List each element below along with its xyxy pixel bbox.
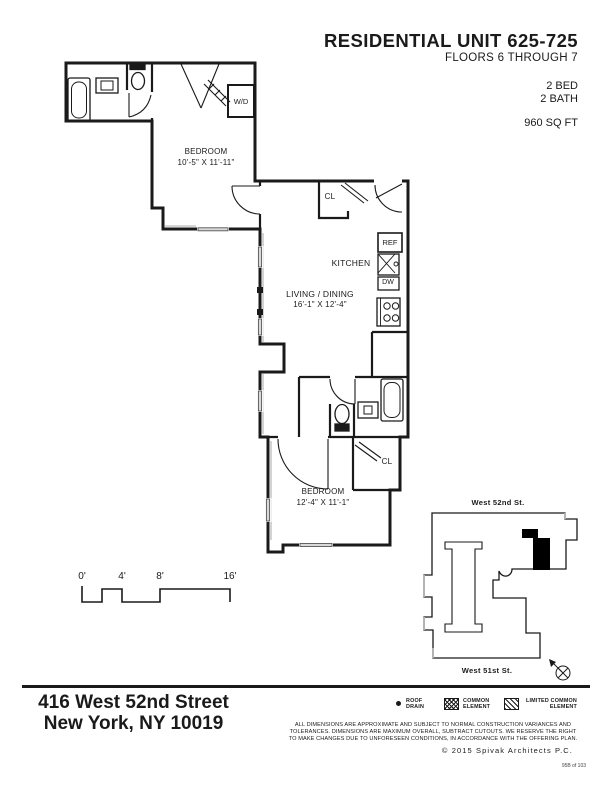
sink2-icon (358, 402, 378, 418)
vestibule-doors (181, 64, 230, 108)
column-marker-1 (257, 287, 263, 293)
compass-icon (549, 659, 570, 680)
toilet2-icon (335, 405, 349, 432)
bathroom1-door (129, 93, 151, 117)
bedroom1-label: BEDROOM (185, 147, 228, 156)
closet2-bifold-door (355, 442, 381, 461)
window-living-3 (257, 390, 264, 412)
bedroom2-label: BEDROOM (302, 487, 345, 496)
address-line1: 416 West 52nd Street (31, 692, 236, 714)
keyplan-gray-edges (424, 513, 565, 658)
disclaimer-line1: ALL DIMENSIONS ARE APPROXIMATE AND SUBJE… (268, 722, 598, 729)
bed-count: 2 BED (546, 80, 578, 92)
legend-roof-drain: ROOF DRAIN (406, 698, 424, 710)
key-plan (424, 513, 577, 680)
bathroom2-door (330, 379, 355, 404)
disclaimer-line3: TO MAKE CHANGES DUE TO UNFORESEEN CONDIT… (268, 736, 598, 743)
legend-limited-common: LIMITED COMMON ELEMENT (522, 698, 577, 710)
interior-walls (127, 63, 408, 490)
washer-dryer-label: W/D (234, 97, 249, 106)
unit-location-fill (522, 529, 550, 570)
entry-opening (374, 178, 402, 184)
bathtub-icon (68, 78, 90, 121)
scale-tick-4: 4' (118, 571, 125, 582)
kitchen-sink-icon (378, 254, 399, 275)
street-label-top: West 52nd St. (472, 498, 525, 507)
page-subtitle: FLOORS 6 THROUGH 7 (445, 52, 578, 64)
floorplan-page: RESIDENTIAL UNIT 625-725 FLOORS 6 THROUG… (0, 0, 612, 792)
fixtures (68, 64, 403, 432)
bathroom2-walls (299, 377, 408, 437)
address-line2: New York, NY 10019 (31, 713, 236, 735)
wall-shading (165, 226, 271, 540)
window-living-1 (257, 246, 264, 268)
kitchen-walls (372, 332, 408, 377)
dishwasher-label: DW (382, 279, 394, 286)
building-lightwell (445, 542, 482, 632)
bedroom1-dimensions: 10'-5" X 11'-11" (177, 158, 234, 167)
roof-drain-icon (396, 701, 401, 706)
window-living-2 (257, 318, 264, 336)
toilet-icon (130, 64, 145, 90)
copyright: © 2015 Spivak Architects P.C. (442, 746, 573, 755)
footer-rule (22, 685, 590, 688)
building-outline (424, 513, 577, 658)
bathtub2-icon (381, 379, 403, 421)
limited-common-element-icon (504, 698, 519, 710)
window-bedroom1 (197, 226, 229, 233)
refrigerator-label: REF (383, 238, 398, 247)
square-footage: 960 SQ FT (524, 117, 578, 129)
scale-tick-16: 16' (223, 571, 236, 582)
range-icon (377, 298, 400, 326)
floorplan-drawing (0, 0, 612, 792)
doors (129, 64, 402, 489)
bedroom1-door (232, 186, 260, 214)
street-label-bottom: West 51st St. (462, 666, 512, 675)
bath-count: 2 BATH (540, 93, 578, 105)
bedroom2-door (278, 439, 328, 489)
legend-common-element: COMMON ELEMENT (463, 698, 490, 710)
closet2-walls (353, 437, 400, 490)
page-number: 95B of 103 (562, 763, 586, 769)
closet1-bifold-door (341, 183, 368, 203)
sink-icon (96, 78, 118, 93)
page-title: RESIDENTIAL UNIT 625-725 (324, 30, 578, 52)
bedroom2-dimensions: 12'-4" X 11'-1" (297, 498, 350, 507)
scale-bar (82, 586, 230, 602)
kitchen-label: KITCHEN (332, 258, 371, 268)
scale-tick-0: 0' (78, 571, 85, 582)
living-label: LIVING / DINING (286, 289, 354, 299)
window-bedroom2-south (299, 542, 333, 549)
disclaimer: ALL DIMENSIONS ARE APPROXIMATE AND SUBJE… (268, 722, 598, 744)
legend-roof-line2: DRAIN (406, 704, 424, 710)
disclaimer-line2: TOLERANCES. DIMENSIONS ARE MAXIMUM OVERA… (268, 729, 598, 736)
unit-outer-walls (66, 63, 408, 552)
legend-limited-line2: ELEMENT (522, 704, 577, 710)
window-bedroom2-west (265, 498, 272, 522)
scale-tick-8: 8' (156, 571, 163, 582)
common-element-icon (444, 698, 459, 710)
column-marker-2 (257, 309, 263, 315)
entry-door (375, 184, 402, 212)
living-dimensions: 16'-1" X 12'-4" (293, 300, 347, 309)
closet2-label: CL (382, 457, 393, 466)
legend-common-line2: ELEMENT (463, 704, 490, 710)
closet1-label: CL (325, 192, 336, 201)
